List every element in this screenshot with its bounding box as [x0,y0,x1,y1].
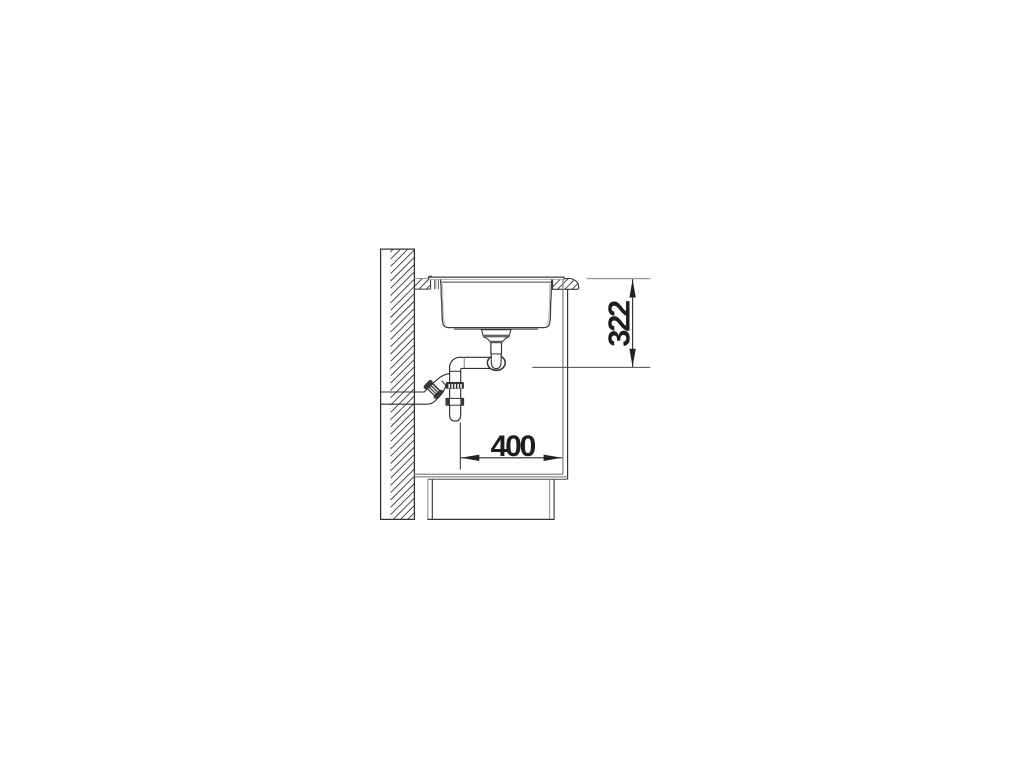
svg-text:400: 400 [491,430,536,463]
svg-text:322: 322 [602,301,637,347]
